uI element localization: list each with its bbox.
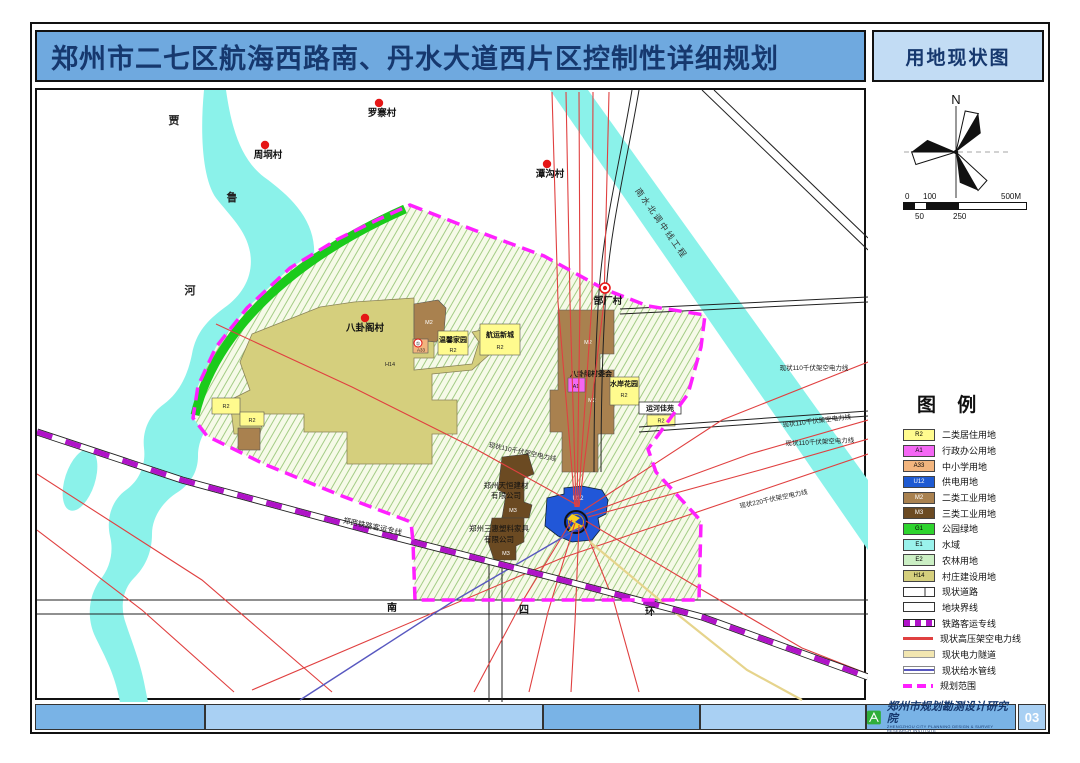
- map-frame: H14 R2 R2 M2 ① A33: [35, 88, 866, 700]
- legend-label: 水域: [942, 538, 960, 551]
- legend-powerline-swatch: [903, 637, 933, 640]
- legend: 图 例 R2 二类居住用地 A1 行政办公用地 A33 中小学用地 U12 供电…: [903, 390, 1063, 694]
- legend-code: G1: [915, 526, 923, 532]
- page-title: 郑州市二七区航海西路南、丹水大道西片区控制性详细规划: [51, 37, 779, 76]
- m3-code: M3: [509, 508, 517, 514]
- scale-tick: 0: [905, 192, 909, 201]
- legend-label: 公园绿地: [942, 522, 978, 535]
- river-name-char: 贾: [169, 114, 180, 127]
- legend-label: 村庄建设用地: [942, 570, 996, 583]
- r2-code: R2: [449, 348, 456, 354]
- legend-label: 行政办公用地: [942, 444, 996, 457]
- scale-bar: 0 100 500M 50 250: [903, 192, 1027, 226]
- company-label: 有限公司: [491, 490, 521, 500]
- legend-waterpipe-swatch: [903, 666, 935, 674]
- site-label: 温馨家园: [439, 335, 467, 344]
- school-a33-block: ① A33: [413, 339, 428, 353]
- legend-label: 现状给水管线: [942, 664, 996, 677]
- r2-code: R2: [620, 393, 627, 399]
- legend-swatch: M2: [903, 492, 935, 504]
- legend-label: 地块界线: [942, 601, 978, 614]
- village-label: 八卦阁村: [345, 322, 385, 334]
- legend-item: G1 公园绿地: [903, 521, 1063, 537]
- footer-institute-box: 郑州市规划勘测设计研究院 ZHENGZHOU CITY PLANNING DES…: [866, 704, 1016, 730]
- compass-blades: [910, 106, 989, 196]
- a33-code: A33: [417, 348, 426, 353]
- legend-swatch: A1: [903, 445, 935, 457]
- legend-tunnel-swatch: [903, 650, 935, 658]
- legend-title: 图 例: [917, 390, 1063, 417]
- map-type-label: 用地现状图: [905, 43, 1010, 70]
- legend-swatch: M3: [903, 507, 935, 519]
- legend-item: M3 三类工业用地: [903, 505, 1063, 521]
- legend-item: 现状高压架空电力线: [903, 631, 1063, 647]
- ring-road-char: 环: [645, 606, 655, 618]
- map-canvas: H14 R2 R2 M2 ① A33: [37, 90, 868, 702]
- m2-code: M2: [584, 340, 592, 346]
- village-dot: [261, 141, 269, 149]
- legend-swatch: A33: [903, 460, 935, 472]
- legend-boundary-swatch: [903, 684, 933, 688]
- legend-item: M2 二类工业用地: [903, 490, 1063, 506]
- ring-road-char: 四: [519, 604, 529, 616]
- m3-code: M3: [502, 551, 510, 557]
- legend-label: 规划范围: [940, 679, 976, 692]
- legend-item: R2 二类居住用地: [903, 427, 1063, 443]
- legend-item: H14 村庄建设用地: [903, 568, 1063, 584]
- page-number: 03: [1018, 704, 1046, 730]
- m2-code: M2: [425, 320, 433, 326]
- legend-code: A1: [915, 448, 922, 454]
- legend-label: 铁路客运专线: [942, 617, 996, 630]
- legend-code: M3: [915, 510, 923, 516]
- page-number-value: 03: [1025, 710, 1039, 725]
- legend-label: 现状道路: [942, 585, 978, 598]
- legend-label: 供电用地: [942, 475, 978, 488]
- legend-code: M2: [915, 495, 923, 501]
- legend-item: 现状给水管线: [903, 662, 1063, 678]
- legend-code: A33: [914, 463, 925, 469]
- legend-item: E2 农林用地: [903, 553, 1063, 569]
- site-label: 水岸花园: [610, 379, 638, 388]
- power-line-label: 现状110千伏架空电力线: [780, 363, 849, 372]
- legend-label: 二类居住用地: [942, 428, 996, 441]
- company-label: 郑州天恒建材: [484, 480, 529, 490]
- institute-name-en: ZHENGZHOU CITY PLANNING DESIGN & SURVEY …: [887, 725, 1015, 734]
- compass-rose: N: [900, 90, 1020, 202]
- village-dot: [543, 160, 551, 168]
- r2-code: R2: [248, 418, 255, 424]
- legend-item: 铁路客运专线: [903, 615, 1063, 631]
- legend-item: A33 中小学用地: [903, 458, 1063, 474]
- site-label: 运河佳苑: [646, 404, 674, 413]
- residential-wenxin: 温馨家园 R2: [438, 331, 468, 355]
- legend-code: U12: [913, 479, 924, 485]
- legend-code: E1: [915, 542, 922, 548]
- village-dot: [375, 99, 383, 107]
- legend-swatch: R2: [903, 429, 935, 441]
- village-label: 罗寨村: [368, 107, 397, 119]
- title-bar: 郑州市二七区航海西路南、丹水大道西片区控制性详细规划: [35, 30, 866, 82]
- village-dot: [361, 314, 369, 322]
- legend-item: 规划范围: [903, 678, 1063, 694]
- legend-label: 二类工业用地: [942, 491, 996, 504]
- legend-item: U12 供电用地: [903, 474, 1063, 490]
- legend-code: H14: [913, 573, 924, 579]
- r2-code: R2: [657, 419, 664, 425]
- residential-hangyun: 航运新城 R2: [480, 324, 520, 355]
- legend-label: 三类工业用地: [942, 507, 996, 520]
- legend-label: 现状高压架空电力线: [940, 632, 1021, 645]
- ring-road-char: 南: [387, 601, 397, 614]
- river-name-char: 河: [185, 283, 196, 297]
- legend-item: E1 水域: [903, 537, 1063, 553]
- village-label: 潭沟村: [536, 168, 565, 180]
- footer-bar-segment: [205, 704, 543, 730]
- scale-bar-strip: [903, 202, 1027, 210]
- company-label: 郑州三惠塑料家具: [469, 523, 529, 533]
- legend-road-swatch: [903, 587, 935, 597]
- plan-sheet-page: 郑州市二七区航海西路南、丹水大道西片区控制性详细规划 用地现状图: [0, 0, 1080, 763]
- legend-parcel-swatch: [903, 602, 935, 612]
- r2-code: R2: [222, 404, 229, 410]
- scale-tick: 50: [915, 212, 924, 221]
- legend-label: 现状电力隧道: [942, 648, 996, 661]
- scale-tick: 100: [923, 192, 936, 201]
- footer-bar-segment: [700, 704, 866, 730]
- legend-label: 农林用地: [942, 554, 978, 567]
- village-label: 周垌村: [254, 149, 283, 161]
- site-label: 八卦阁村委会: [569, 369, 613, 378]
- legend-railway-swatch: [903, 619, 935, 627]
- legend-item: 地块界线: [903, 600, 1063, 616]
- legend-swatch: H14: [903, 570, 935, 582]
- legend-item: A1 行政办公用地: [903, 443, 1063, 459]
- legend-item: 现状电力隧道: [903, 647, 1063, 663]
- map-type-header: 用地现状图: [872, 30, 1044, 82]
- north-label: N: [951, 92, 960, 107]
- footer-bar-segment: [543, 704, 700, 730]
- legend-code: R2: [915, 432, 923, 438]
- site-label: 航运新城: [486, 330, 514, 339]
- h14-code: H14: [385, 362, 395, 368]
- institute-logo: [867, 709, 881, 726]
- river-name-char: 鲁: [227, 190, 238, 204]
- r2-code: R2: [496, 345, 503, 351]
- legend-swatch: E2: [903, 554, 935, 566]
- scale-tick: 250: [953, 212, 966, 221]
- institute-name: 郑州市规划勘测设计研究院: [887, 701, 1015, 725]
- legend-swatch: G1: [903, 523, 935, 535]
- footer-bar-segment: [35, 704, 205, 730]
- legend-item: 现状道路: [903, 584, 1063, 600]
- legend-swatch: U12: [903, 476, 935, 488]
- residential-shuian: 水岸花园 R2: [610, 377, 639, 405]
- legend-code: E2: [915, 557, 922, 563]
- scale-tick: 500M: [1001, 192, 1021, 201]
- legend-label: 中小学用地: [942, 460, 987, 473]
- village-label: 郜厂村: [594, 295, 623, 307]
- legend-swatch: E1: [903, 539, 935, 551]
- company-label: 有限公司: [484, 534, 514, 544]
- power-line-label: 现状220千伏架空电力线: [739, 487, 809, 510]
